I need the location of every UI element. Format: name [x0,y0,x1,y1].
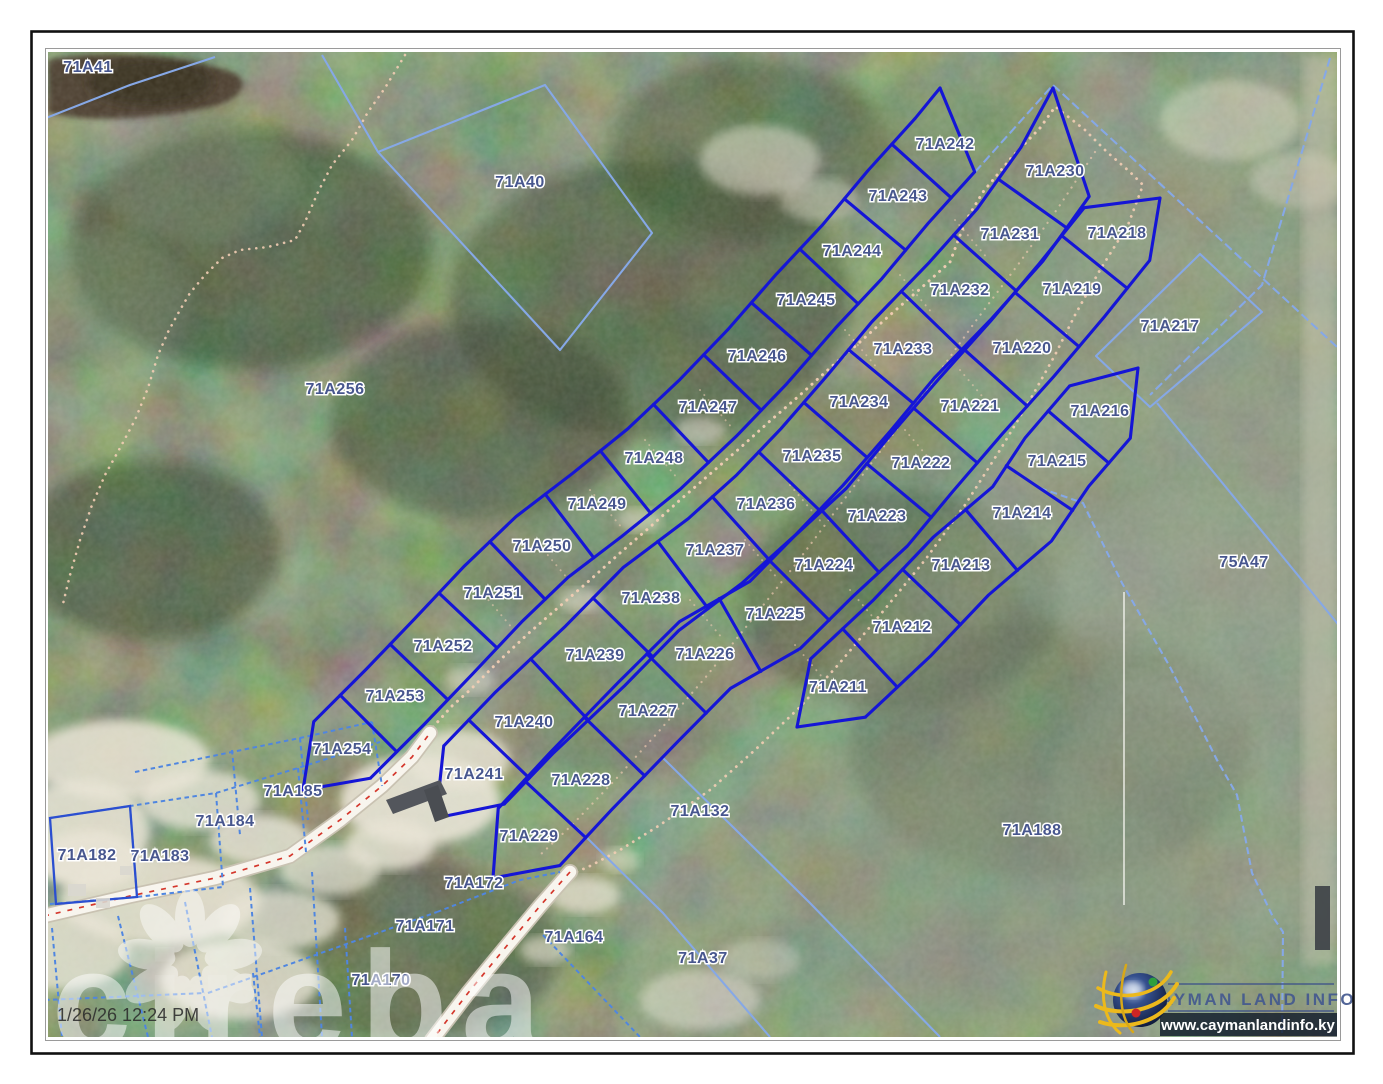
parcel-label-71A244: 71A244 [822,243,881,260]
parcel-label-71A220: 71A220 [992,340,1051,357]
parcel-label-71A250: 71A250 [512,538,571,555]
parcel-label-71A216: 71A216 [1070,403,1129,420]
parcel-label-71A188: 71A188 [1002,822,1061,839]
parcel-label-71A243: 71A243 [868,188,927,205]
parcel-label-71A182: 71A182 [57,847,116,864]
parcel-label-71A249: 71A249 [567,496,626,513]
parcel-label-71A256: 71A256 [305,381,364,398]
parcel-label-71A225: 71A225 [745,606,804,623]
parcel-label-75A47: 75A47 [1219,554,1269,571]
cireba-watermark-text: cireba [52,922,554,1081]
parcel-label-71A227: 71A227 [618,703,677,720]
parcel-label-71A252: 71A252 [413,638,472,655]
parcel-label-71A238: 71A238 [621,590,680,607]
map-timestamp: 1/26/26 12:24 PM [57,1005,199,1025]
logo-url[interactable]: www.caymanlandinfo.ky [1160,1017,1335,1034]
parcel-label-71A245: 71A245 [776,292,835,309]
parcel-label-71A235: 71A235 [782,448,841,465]
parcel-label-71A239: 71A239 [565,647,624,664]
parcel-label-71A226: 71A226 [675,646,734,663]
parcel-label-71A241: 71A241 [444,766,503,783]
parcel-label-71A214: 71A214 [992,505,1051,522]
parcel-label-71A251: 71A251 [463,585,522,602]
parcel-label-71A172: 71A172 [444,875,503,892]
parcel-label-71A211: 71A211 [809,679,867,696]
parcel-label-71A232: 71A232 [930,282,989,299]
parcel-label-71A229: 71A229 [499,828,558,845]
parcel-label-71A230: 71A230 [1025,163,1084,180]
logo-title: CAYMAN LAND INFO [1146,990,1356,1009]
parcel-label-71A237: 71A237 [685,542,744,559]
parcel-label-71A132: 71A132 [670,803,729,820]
parcel-label-71A253: 71A253 [365,688,424,705]
parcel-label-71A231: 71A231 [980,226,1039,243]
map-generated-content: 71A4171A4071A25671A24271A24371A24471A245… [0,52,1383,1040]
parcel-label-71A219: 71A219 [1042,281,1101,298]
parcel-label-71A217: 71A217 [1140,318,1199,335]
parcel-label-71A215: 71A215 [1027,453,1086,470]
parcel-label-71A240: 71A240 [494,714,553,731]
parcel-label-71A223: 71A223 [847,508,906,525]
parcel-label-71A248: 71A248 [624,450,683,467]
parcel-label-71A185: 71A185 [263,783,322,800]
parcel-label-71A222: 71A222 [891,455,950,472]
parcel-label-71A218: 71A218 [1087,225,1146,242]
parcel-label-71A41: 71A41 [63,59,113,76]
parcel-label-71A40: 71A40 [495,174,545,191]
parcel-label-71A184: 71A184 [195,813,254,830]
parcel-label-71A233: 71A233 [873,341,932,358]
parcel-label-71A234: 71A234 [829,394,888,411]
cadastral-map-canvas[interactable]: 71A4171A4071A25671A24271A24371A24471A245… [0,0,1383,1084]
parcel-label-71A183: 71A183 [130,848,189,865]
parcel-label-71A242: 71A242 [915,136,974,153]
parcel-label-71A246: 71A246 [727,348,786,365]
parcel-label-71A213: 71A213 [931,557,990,574]
map-page: 71A4171A4071A25671A24271A24371A24471A245… [0,0,1383,1084]
parcel-label-71A236: 71A236 [736,496,795,513]
parcel-label-71A247: 71A247 [678,399,737,416]
parcel-label-71A37: 71A37 [678,950,728,967]
parcel-label-71A221: 71A221 [940,398,999,415]
parcel-label-71A228: 71A228 [551,772,610,789]
parcel-label-71A212: 71A212 [872,619,931,636]
parcel-label-71A224: 71A224 [794,557,853,574]
parcel-label-71A254: 71A254 [312,741,371,758]
